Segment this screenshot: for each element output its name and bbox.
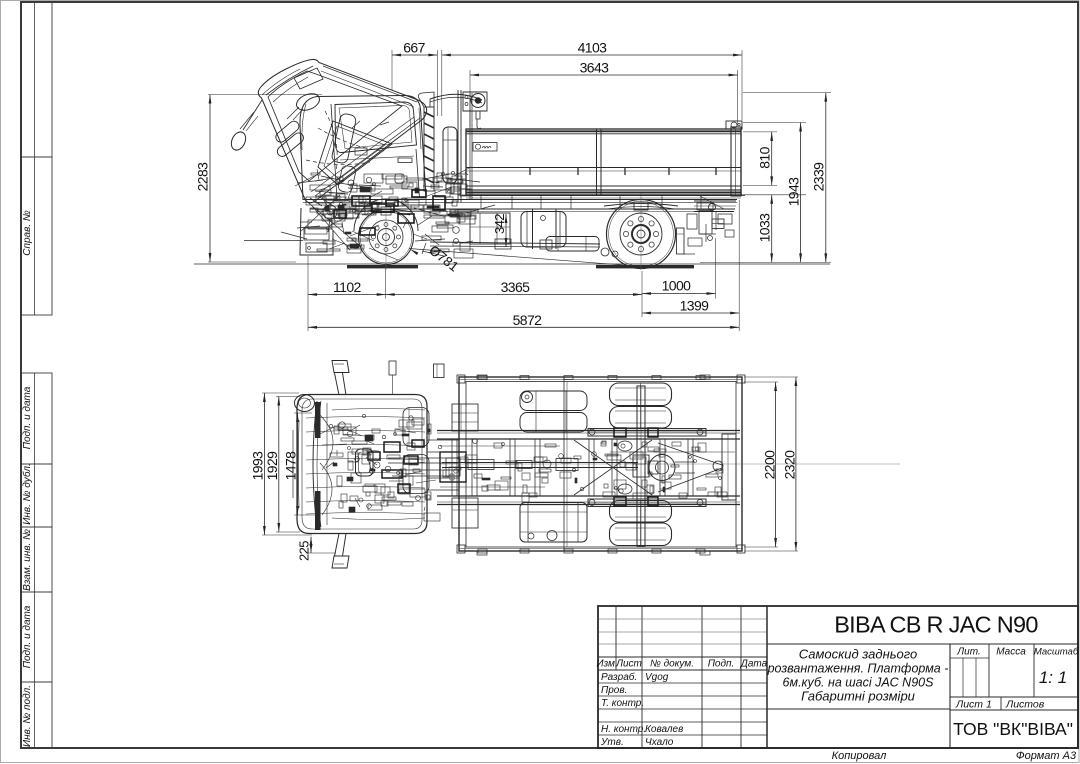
svg-text:Утв.: Утв. (600, 737, 624, 748)
svg-text:Подп. и дата: Подп. и дата (22, 605, 33, 668)
svg-text:Н. контр.: Н. контр. (601, 724, 646, 735)
svg-text:Чхало: Чхало (645, 737, 674, 748)
svg-text:Ковалев: Ковалев (645, 724, 683, 735)
svg-text:1943: 1943 (786, 177, 802, 207)
svg-text:667: 667 (403, 40, 425, 56)
svg-text:Т. контр.: Т. контр. (601, 698, 644, 709)
svg-text:1: 1: 1: 1 (1039, 668, 1067, 687)
svg-text:3365: 3365 (501, 279, 531, 295)
svg-text:Разраб.: Разраб. (601, 671, 637, 683)
svg-text:2283: 2283 (195, 162, 211, 192)
svg-text:Самоскид заднього: Самоскид заднього (799, 647, 918, 662)
svg-text:4103: 4103 (578, 40, 608, 56)
svg-text:Листов: Листов (1005, 699, 1045, 711)
svg-text:810: 810 (757, 146, 773, 168)
svg-text:Инв. № дубл.: Инв. № дубл. (21, 463, 33, 525)
svg-text:2339: 2339 (811, 162, 827, 192)
svg-text:1102: 1102 (333, 279, 362, 295)
svg-text:Подп. и дата: Подп. и дата (22, 386, 33, 449)
svg-text:Пров.: Пров. (601, 685, 627, 696)
svg-text:Габаритні розміри: Габаритні розміри (801, 689, 915, 704)
svg-text:Лист: Лист (615, 659, 642, 670)
svg-text:№ докум.: № докум. (650, 659, 694, 670)
svg-text:1000: 1000 (662, 278, 692, 294)
svg-text:розвантаження. Платформа -: розвантаження. Платформа - (767, 662, 949, 676)
svg-text:BIBA CB R JAC N90: BIBA CB R JAC N90 (834, 612, 1038, 638)
svg-text:Лист 1: Лист 1 (955, 699, 992, 711)
svg-text:ТОВ "ВК"ВІВА": ТОВ "ВК"ВІВА" (953, 719, 1073, 739)
svg-text:Инв. № подл.: Инв. № подл. (22, 685, 33, 747)
svg-text:2200: 2200 (762, 450, 778, 480)
svg-text:Дата: Дата (740, 659, 768, 670)
svg-text:Формат А3: Формат А3 (1016, 750, 1077, 762)
svg-text:225: 225 (297, 541, 312, 561)
svg-text:Взам. инв. №: Взам. инв. № (22, 529, 33, 591)
svg-text:5872: 5872 (513, 312, 543, 328)
svg-text:Подп.: Подп. (708, 659, 735, 670)
svg-text:6м.куб. на шасі JAC N90S: 6м.куб. на шасі JAC N90S (783, 676, 935, 690)
svg-text:2320: 2320 (782, 450, 798, 480)
svg-text:342: 342 (492, 214, 507, 234)
svg-text:1478: 1478 (283, 451, 299, 481)
svg-text:1929: 1929 (264, 451, 280, 481)
svg-text:Справ. №: Справ. № (22, 210, 33, 256)
svg-text:Vgog: Vgog (645, 672, 669, 683)
svg-text:Масса: Масса (996, 647, 1026, 658)
svg-text:Лит.: Лит. (956, 647, 980, 658)
svg-text:Изм.: Изм. (596, 659, 617, 670)
svg-text:1033: 1033 (757, 213, 773, 243)
svg-text:Копировал: Копировал (832, 750, 887, 762)
svg-text:3643: 3643 (580, 60, 610, 76)
svg-text:Масштаб: Масштаб (1034, 647, 1079, 658)
svg-text:1399: 1399 (680, 298, 710, 314)
